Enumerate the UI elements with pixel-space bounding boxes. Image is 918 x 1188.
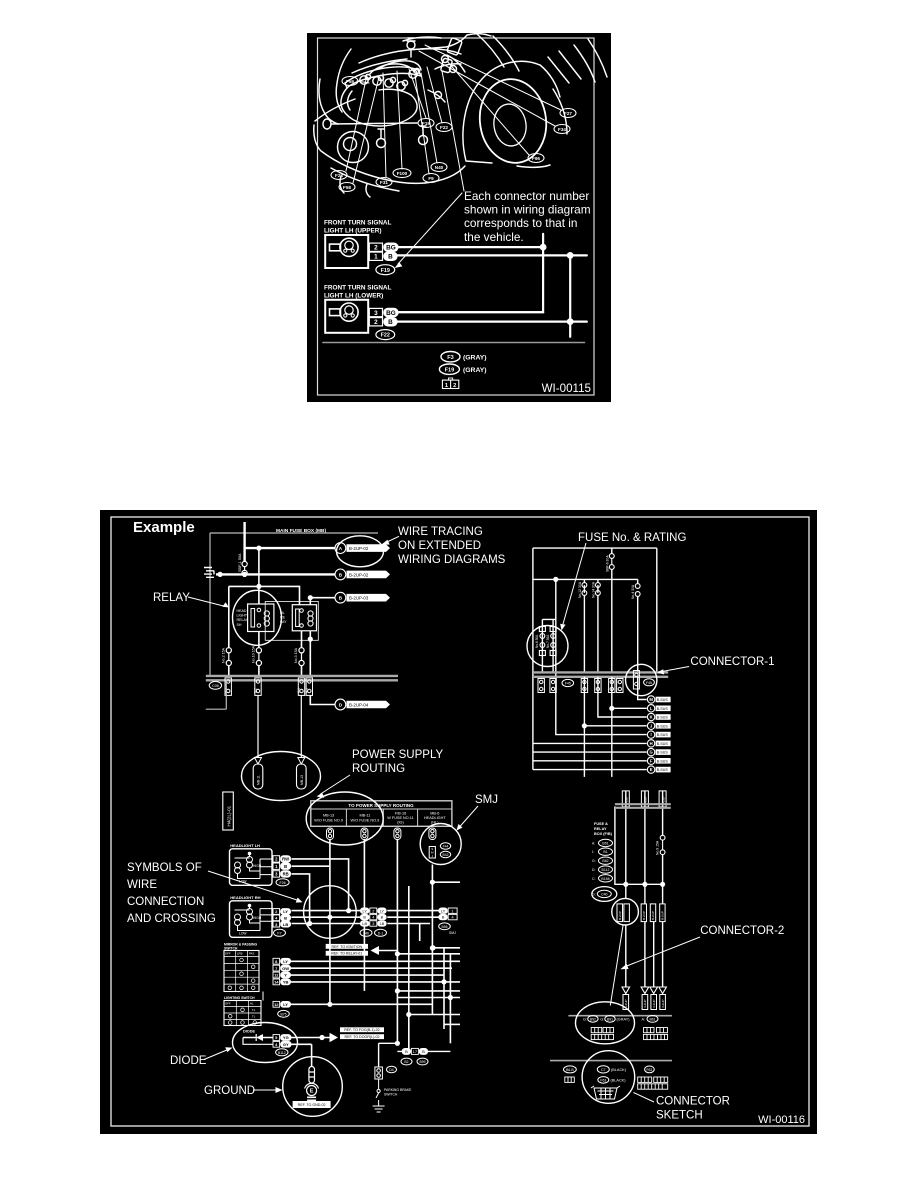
svg-text:B: B [339, 596, 343, 601]
svg-text:YB: YB [283, 980, 289, 985]
svg-text:BOX (F/B): BOX (F/B) [594, 832, 613, 836]
svg-text:F9: F9 [428, 176, 434, 181]
svg-text:AND CROSSING: AND CROSSING [127, 913, 216, 925]
svg-text:HL: HL [250, 1002, 254, 1006]
svg-text:TL: TL [252, 1008, 256, 1012]
svg-text:MB-11: MB-11 [359, 814, 370, 818]
svg-text:1: 1 [374, 254, 378, 261]
svg-text:B61: B61 [649, 1017, 655, 1021]
svg-text:LY: LY [283, 909, 288, 914]
svg-text:B112: B112 [602, 868, 610, 872]
svg-text:REF. TO IGNITION: REF. TO IGNITION [331, 945, 362, 949]
svg-text:B-2UP: B-2UP [618, 911, 622, 920]
svg-text:F45: F45 [646, 681, 652, 685]
svg-text:No.4 30A: No.4 30A [631, 584, 635, 599]
svg-text:No.12 30A: No.12 30A [578, 581, 582, 598]
svg-text:2: 2 [275, 857, 278, 862]
svg-text:Each connector number: Each connector number [464, 189, 589, 203]
svg-text:F19: F19 [445, 367, 455, 373]
svg-text:OFF: OFF [225, 952, 231, 956]
svg-text:ON EXTENDED: ON EXTENDED [398, 540, 481, 552]
svg-text:HEAD: HEAD [237, 609, 247, 613]
svg-text:RE: RE [280, 616, 286, 620]
svg-text:RELAY: RELAY [594, 827, 607, 831]
svg-text:E: E [650, 767, 653, 772]
svg-text:LY: LY [283, 1002, 288, 1007]
svg-text:B: B [284, 916, 287, 921]
svg-text:OFF: OFF [225, 1002, 231, 1006]
svg-text:SWITCH: SWITCH [224, 946, 238, 950]
svg-text:D-1: D-1 [378, 931, 384, 935]
svg-text:B-2: B-2 [254, 688, 258, 693]
svg-text:D:: D: [592, 868, 595, 872]
svg-text:HIGH: HIGH [253, 916, 262, 920]
svg-text:12: 12 [274, 973, 279, 978]
svg-text:TL: TL [252, 1015, 256, 1019]
svg-text:RB: RB [283, 872, 289, 877]
svg-text:B91: B91 [607, 1017, 613, 1021]
svg-text:WIRING DIAGRAMS: WIRING DIAGRAMS [398, 554, 506, 566]
svg-text:WIRE: WIRE [127, 879, 157, 891]
svg-text:LB: LB [362, 922, 367, 926]
svg-text:C:: C: [592, 877, 595, 881]
svg-text:2: 2 [275, 909, 278, 914]
svg-text:W/O FUSE NO.9: W/O FUSE NO.9 [314, 819, 343, 823]
svg-text:LIGHT: LIGHT [237, 614, 248, 618]
svg-text:B: B [388, 319, 393, 326]
svg-text:CONNECTOR: CONNECTOR [656, 1096, 730, 1108]
svg-text:B62: B62 [602, 859, 608, 863]
svg-text:C40: C40 [601, 892, 607, 896]
svg-text:POWER SUPPLY: POWER SUPPLY [352, 749, 443, 761]
svg-text:B-2UP-04: B-2UP-04 [349, 702, 369, 707]
svg-text:3: 3 [275, 872, 278, 877]
svg-text:LY: LY [380, 909, 385, 913]
svg-text:MB-11: MB-11 [257, 775, 261, 785]
svg-text:7: 7 [275, 966, 278, 971]
svg-text:J: J [650, 723, 653, 728]
svg-text:G:: G: [583, 1018, 587, 1022]
svg-text:Y: Y [284, 973, 287, 978]
svg-text:B6-B: B6-B [566, 1068, 574, 1072]
svg-text:K: K [650, 715, 653, 720]
svg-text:B99: B99 [419, 1060, 425, 1064]
svg-text:FRONT TURN SIGNAL: FRONT TURN SIGNAL [324, 220, 392, 227]
svg-text:2: 2 [374, 245, 378, 252]
svg-text:C06: C06 [212, 684, 219, 688]
svg-text:ROUTING: ROUTING [352, 763, 405, 775]
svg-text:LRB: LRB [237, 952, 243, 956]
svg-text:BG: BG [386, 310, 396, 317]
svg-text:HIGH: HIGH [253, 864, 262, 868]
svg-text:LOW: LOW [239, 932, 247, 936]
svg-text:I:: I: [592, 850, 594, 854]
svg-text:F100: F100 [397, 171, 408, 176]
svg-text:F7: F7 [277, 931, 281, 935]
svg-text:F23: F23 [335, 173, 343, 178]
svg-text:8: 8 [275, 959, 278, 964]
svg-text:REF. TO GND-02: REF. TO GND-02 [298, 1103, 326, 1107]
svg-text:SMJ: SMJ [449, 931, 456, 935]
svg-text:LAY: LAY [280, 620, 287, 624]
svg-text:F31: F31 [380, 180, 388, 185]
svg-text:LIGHT LH (LOWER): LIGHT LH (LOWER) [324, 293, 383, 300]
svg-text:B: B [422, 1049, 425, 1054]
svg-text:MB-13: MB-13 [300, 775, 304, 785]
svg-text:4: 4 [452, 916, 454, 920]
svg-text:B158: B158 [601, 877, 609, 881]
svg-text:F34: F34 [558, 127, 566, 132]
svg-text:LIGHT LH (UPPER): LIGHT LH (UPPER) [324, 228, 382, 235]
svg-text:G:: G: [600, 1018, 604, 1022]
svg-text:MB-6: MB-6 [430, 812, 439, 816]
svg-text:B2: B2 [404, 1060, 408, 1064]
svg-text:B-SUS: B-SUS [657, 733, 669, 737]
svg-text:LB: LB [283, 922, 288, 927]
svg-text:the vehicle.: the vehicle. [464, 230, 524, 244]
svg-text:F96: F96 [532, 156, 540, 161]
svg-text:4-2UP: 4-2UP [652, 999, 656, 1008]
svg-text:GY: GY [283, 1042, 289, 1047]
svg-text:PAS: PAS [249, 952, 255, 956]
svg-text:4: 4 [275, 1042, 278, 1047]
svg-text:E: E [310, 1089, 314, 1095]
svg-text:(GRAY): (GRAY) [617, 1018, 631, 1022]
svg-text:TO POWER SUPPLY ROUTING: TO POWER SUPPLY ROUTING [348, 803, 414, 808]
svg-text:G: G [649, 750, 652, 755]
svg-text:SBF-1 50A: SBF-1 50A [238, 553, 242, 572]
svg-text:FUSE No. & RATING: FUSE No. & RATING [578, 532, 686, 544]
svg-text:B1: B1 [603, 850, 607, 854]
svg-text:1: 1 [445, 383, 449, 389]
svg-text:F44: F44 [443, 845, 449, 849]
svg-text:1: 1 [275, 864, 278, 869]
svg-text:N40: N40 [435, 165, 444, 170]
svg-text:F58: F58 [343, 185, 351, 190]
svg-text:B: B [339, 572, 343, 577]
svg-text:WI-00115: WI-00115 [542, 382, 591, 395]
svg-text:B-SUS: B-SUS [657, 759, 669, 763]
svg-text:4-2UP: 4-2UP [661, 999, 665, 1008]
svg-text:4: 4 [372, 916, 374, 920]
svg-text:G:: G: [592, 859, 596, 863]
svg-text:B75: B75 [280, 1012, 286, 1016]
svg-text:D: D [339, 702, 343, 707]
svg-text:LIGHTING SWITCH: LIGHTING SWITCH [224, 996, 255, 1000]
svg-text:HEADLIGHT: HEADLIGHT [424, 816, 446, 820]
svg-text:RELAY: RELAY [237, 618, 249, 622]
svg-text:WIRE TRACING: WIRE TRACING [398, 526, 483, 538]
svg-text:B51: B51 [602, 842, 608, 846]
svg-text:HEADLIGHT LH: HEADLIGHT LH [230, 843, 260, 848]
svg-text:H4(2L)-01: H4(2L)-01 [227, 805, 232, 826]
svg-text:F26: F26 [279, 881, 285, 885]
svg-text:B: B [405, 1049, 408, 1054]
svg-text:B-SUS: B-SUS [657, 707, 669, 711]
svg-text:W FUSE NO.11: W FUSE NO.11 [387, 816, 414, 820]
svg-text:B92: B92 [590, 1017, 596, 1021]
svg-text:F45: F45 [565, 682, 571, 686]
svg-text:shown in wiring diagram: shown in wiring diagram [464, 203, 591, 217]
svg-text:4: 4 [275, 916, 278, 921]
svg-text:4-2UP: 4-2UP [643, 999, 647, 1008]
svg-text:(BLACK): (BLACK) [611, 1068, 627, 1072]
svg-text:LB: LB [380, 922, 385, 926]
svg-text:SBF-6 30A: SBF-6 30A [605, 555, 609, 572]
svg-text:No.14 30A: No.14 30A [591, 581, 595, 598]
svg-text:2: 2 [453, 383, 456, 389]
svg-text:F27: F27 [564, 111, 572, 116]
svg-text:B56: B56 [441, 925, 447, 929]
svg-text:F3: F3 [447, 355, 454, 361]
svg-text:F22: F22 [381, 333, 390, 339]
svg-text:B-2UP-02: B-2UP-02 [349, 572, 369, 577]
svg-text:2: 2 [374, 319, 378, 326]
svg-text:REF. TO FOG(B-1)-02: REF. TO FOG(B-1)-02 [344, 1028, 380, 1032]
svg-text:(IG): (IG) [397, 821, 404, 825]
svg-text:No.10 15A: No.10 15A [252, 645, 256, 663]
svg-text:3: 3 [374, 310, 378, 317]
svg-text:(BLACK): (BLACK) [611, 1078, 627, 1082]
svg-text:A:: A: [592, 842, 595, 846]
svg-text:B: B [363, 916, 366, 920]
svg-text:Example: Example [133, 519, 195, 536]
svg-text:REF. TO RELAY-01: REF. TO RELAY-01 [331, 952, 362, 956]
svg-text:B-2UP-02: B-2UP-02 [349, 546, 369, 551]
svg-text:LY: LY [441, 909, 446, 913]
svg-text:No.9 15A: No.9 15A [656, 840, 660, 855]
svg-text:F: F [650, 758, 653, 763]
svg-text:B-2UP: B-2UP [642, 911, 646, 920]
svg-text:WI-00116: WI-00116 [758, 1114, 805, 1126]
svg-text:F19: F19 [381, 268, 390, 274]
svg-text:I: I [651, 732, 652, 737]
svg-text:CONNECTION: CONNECTION [127, 896, 204, 908]
svg-text:B: B [381, 916, 384, 920]
svg-text:3: 3 [372, 922, 374, 926]
svg-text:B-SUS: B-SUS [657, 716, 669, 720]
svg-text:No.6 30A: No.6 30A [535, 634, 539, 648]
svg-text:B-5: B-5 [305, 688, 309, 693]
svg-text:F22: F22 [440, 125, 448, 130]
svg-text:DIODE: DIODE [243, 1030, 255, 1034]
svg-text:B: B [388, 254, 393, 261]
svg-text:W/O FUSE NO.9: W/O FUSE NO.9 [351, 819, 380, 823]
svg-text:B-SUS: B-SUS [657, 751, 669, 755]
svg-text:14: 14 [274, 980, 279, 985]
svg-text:B-2UP: B-2UP [651, 911, 655, 920]
svg-text:No.2 15A: No.2 15A [222, 647, 226, 663]
svg-text:B-2UP-03: B-2UP-03 [349, 596, 369, 601]
svg-text:2: 2 [372, 909, 374, 913]
svg-text:(GRAY): (GRAY) [463, 355, 487, 362]
svg-text:3: 3 [275, 922, 278, 927]
svg-text:RW: RW [282, 857, 289, 862]
svg-text:B-SUS: B-SUS [657, 698, 669, 702]
svg-text:F63: F63 [646, 1068, 652, 1072]
svg-text:B42: B42 [442, 853, 448, 857]
svg-text:B112: B112 [278, 1051, 286, 1055]
svg-text:DIODE: DIODE [170, 1055, 207, 1067]
svg-text:H: H [650, 741, 653, 746]
svg-text:GROUND: GROUND [204, 1085, 255, 1097]
svg-text:B: B [284, 864, 287, 869]
svg-text:M: M [649, 697, 653, 702]
svg-text:BG: BG [386, 245, 396, 252]
svg-text:F63: F63 [600, 1078, 606, 1082]
svg-text:F59: F59 [346, 79, 354, 84]
svg-text:SWITCH: SWITCH [384, 1092, 398, 1096]
svg-text:A: A [339, 546, 343, 551]
svg-text:SMJ: SMJ [475, 794, 498, 806]
svg-text:17: 17 [413, 1049, 418, 1054]
svg-text:5: 5 [275, 1035, 278, 1040]
svg-text:HL: HL [280, 611, 285, 615]
svg-text:corresponds to that in: corresponds to that in [464, 216, 577, 230]
svg-text:SKETCH: SKETCH [656, 1110, 703, 1122]
svg-text:LY: LY [363, 909, 368, 913]
svg-text:F19: F19 [422, 121, 430, 126]
svg-text:C7: C7 [601, 1068, 606, 1072]
svg-text:RELAY: RELAY [153, 592, 190, 604]
svg-text:A:: A: [642, 1018, 646, 1022]
svg-text:No.7 30A: No.7 30A [546, 634, 550, 648]
svg-text:SH: SH [237, 623, 242, 627]
svg-text:L: L [650, 706, 653, 711]
svg-text:F/B-16: F/B-16 [395, 812, 406, 816]
svg-text:1: 1 [452, 909, 454, 913]
svg-text:HEADLIGHT RH: HEADLIGHT RH [230, 895, 260, 900]
svg-text:B-1: B-1 [297, 688, 301, 693]
svg-text:LOW: LOW [239, 880, 247, 884]
svg-text:LY: LY [283, 959, 288, 964]
svg-text:CONNECTOR-2: CONNECTOR-2 [700, 925, 784, 937]
svg-text:FRONT TURN SIGNAL: FRONT TURN SIGNAL [324, 285, 392, 292]
svg-text:12: 12 [274, 1002, 279, 1007]
svg-text:YG: YG [283, 1035, 289, 1040]
svg-text:No.3 15A: No.3 15A [294, 647, 298, 663]
svg-text:B-SUS: B-SUS [657, 768, 669, 772]
svg-text:REF. TO DOOR(L)-02: REF. TO DOOR(L)-02 [344, 1035, 379, 1039]
svg-text:B-2UP: B-2UP [661, 911, 665, 920]
svg-text:F46: F46 [363, 931, 369, 935]
svg-text:FUSE &: FUSE & [594, 822, 608, 826]
svg-text:(GRAY): (GRAY) [463, 367, 487, 374]
svg-text:D4: D4 [389, 1068, 393, 1072]
svg-text:CONNECTOR-1: CONNECTOR-1 [690, 656, 774, 668]
svg-text:GW: GW [282, 966, 289, 971]
svg-text:B-SUS: B-SUS [657, 724, 669, 728]
svg-text:MB-13: MB-13 [323, 814, 334, 818]
svg-text:B-SUS: B-SUS [657, 742, 669, 746]
svg-text:SYMBOLS OF: SYMBOLS OF [127, 862, 202, 874]
